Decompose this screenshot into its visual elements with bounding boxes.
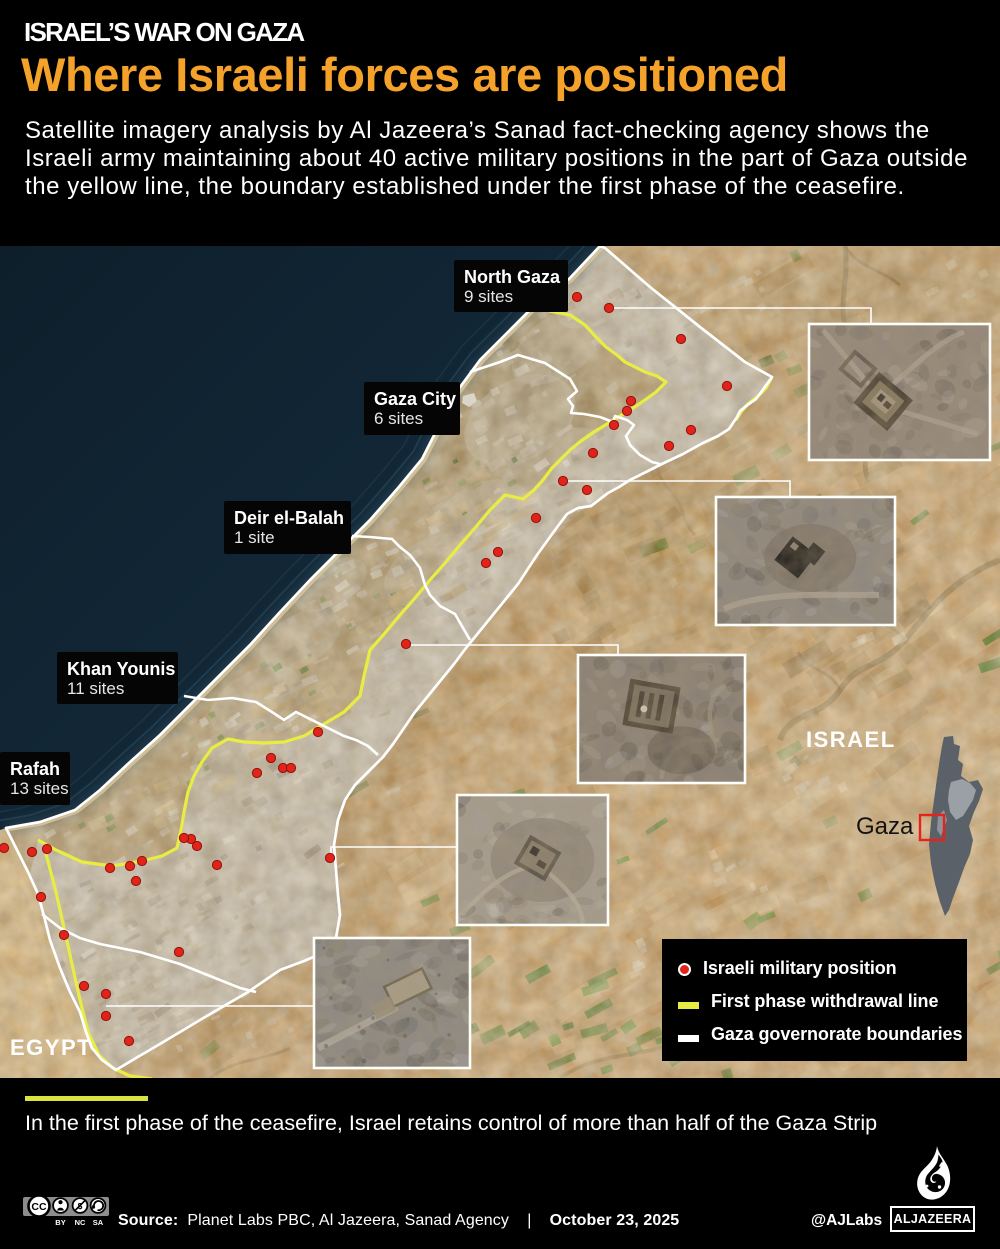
svg-text:BY: BY [55,1218,65,1227]
svg-text:CC: CC [31,1201,47,1213]
svg-text:NC: NC [75,1218,86,1227]
svg-text:SA: SA [93,1218,104,1227]
